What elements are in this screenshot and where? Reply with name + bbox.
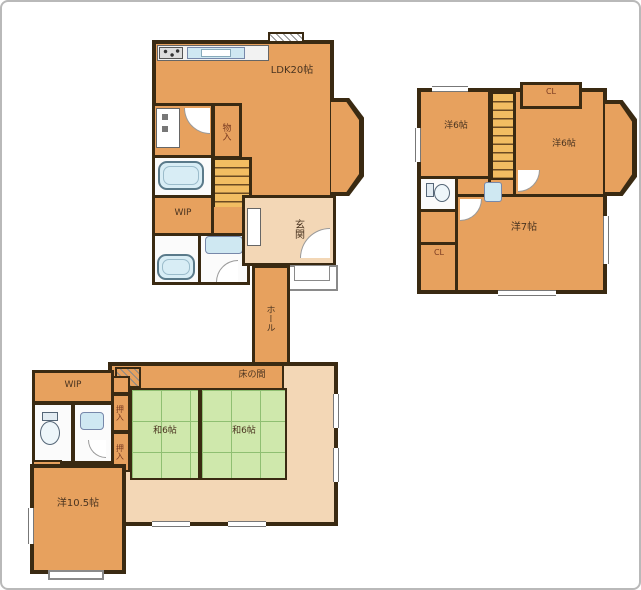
entrance-label: 玄関 (292, 208, 303, 250)
window (415, 128, 421, 162)
wall-segment (421, 242, 457, 245)
kitchen-sink-basin (201, 49, 231, 57)
western-room-label: 洋10.5帖 (35, 499, 121, 510)
wall-segment (513, 92, 516, 197)
window (432, 86, 468, 92)
washbasin-cabinet-icon (156, 108, 180, 148)
room-western-10 (30, 464, 126, 574)
wip-lower-label: WIP (46, 381, 100, 390)
bathtub-icon (157, 254, 195, 280)
tatami-left-label: 和6帖 (140, 427, 190, 436)
window (28, 508, 34, 544)
kitchen-stove-icon (159, 47, 183, 59)
window (603, 216, 609, 264)
floorplan-canvas: LDK20帖 物入 WIP 玄関 ホール 床の間 押入 押入 和6帖 和6帖 (0, 0, 641, 590)
bay-window-bottom (48, 570, 104, 580)
porch-steps-inner (294, 265, 330, 281)
ldk-label: LDK20帖 (242, 66, 342, 77)
oshiire-b-label: 押入 (115, 437, 123, 467)
shoe-cabinet-icon (247, 208, 261, 246)
tokonoma-label: 床の間 (224, 371, 280, 380)
tatami-right-label: 和6帖 (217, 427, 271, 436)
cl-side-2f-label: CL (424, 249, 454, 257)
bay-window-2f-inner (605, 104, 632, 192)
wall-segment (455, 194, 605, 197)
room-nw-label: 洋6帖 (427, 122, 485, 131)
ldk-bay-window-inner (331, 102, 359, 192)
wall-segment (455, 178, 458, 292)
window (152, 521, 190, 527)
toilet-tank (426, 183, 434, 197)
washbasin-knob (162, 126, 168, 132)
toilet-tank (42, 412, 58, 421)
toilet-icon (434, 184, 450, 202)
oshiire-a-label: 押入 (115, 398, 123, 428)
storage-monoire-label: 物入 (220, 112, 229, 152)
washbasin-knob (162, 114, 168, 120)
wall-segment (198, 233, 201, 285)
cl-top-2f-label: CL (538, 88, 564, 96)
vent-box (268, 32, 304, 43)
washbasin-icon (205, 236, 243, 254)
washbasin-icon (80, 412, 104, 430)
hall-label: ホール (264, 282, 273, 354)
stairs-2f (491, 92, 515, 180)
washbasin-icon (484, 182, 502, 202)
room-ne-label: 洋6帖 (534, 140, 594, 149)
window (333, 394, 339, 428)
toilet-icon (40, 421, 60, 445)
window (228, 521, 266, 527)
window (333, 448, 339, 482)
window (498, 290, 556, 296)
bathtub-icon (158, 161, 204, 190)
wip-upper-label: WIP (158, 209, 208, 218)
wall-segment (421, 209, 457, 212)
room-s-label: 洋7帖 (492, 223, 556, 234)
